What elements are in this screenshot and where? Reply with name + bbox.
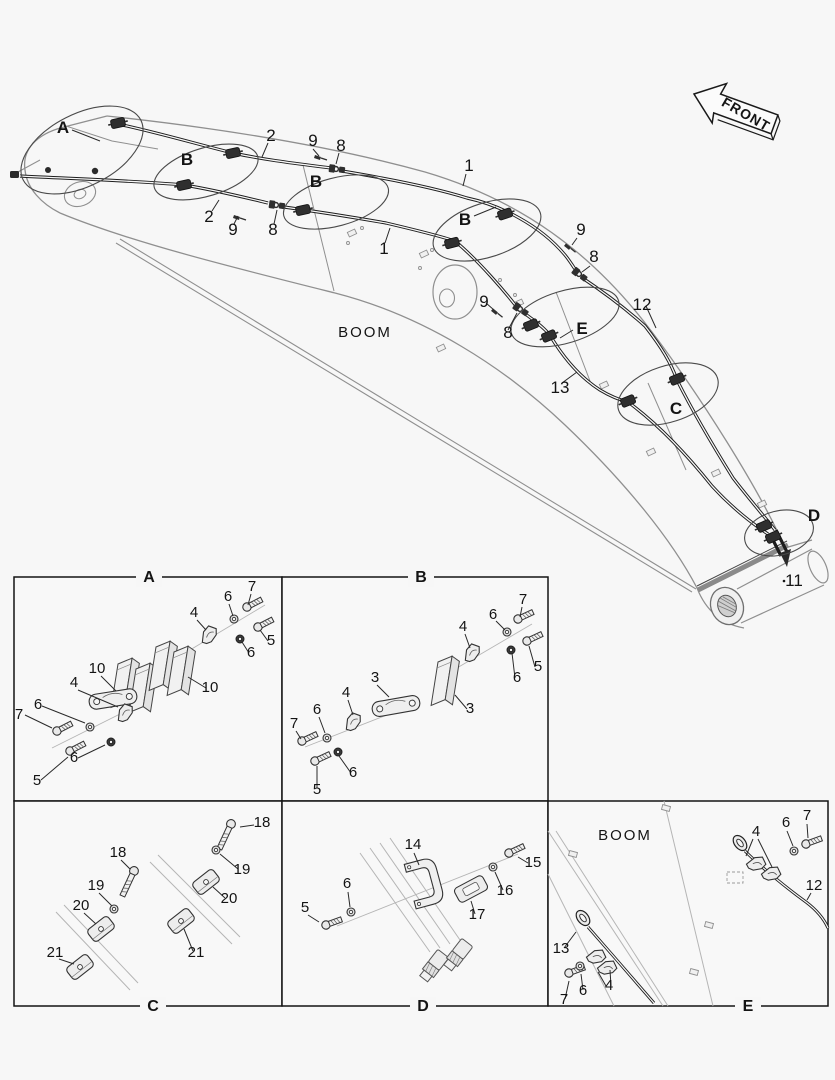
leader-lines-main xyxy=(72,130,656,383)
panel-c-part-label-19: 19 xyxy=(88,877,105,894)
diagram-part-label-1: 1 xyxy=(379,239,388,258)
panel-b-part-label-6: 6 xyxy=(349,764,357,781)
diagram-part-label-9: 9 xyxy=(576,220,585,239)
diagram-callout-B: B xyxy=(181,150,193,169)
diagram-callout-B: B xyxy=(459,210,471,229)
panel-tab-c: C xyxy=(147,998,159,1015)
parts-diagram-page: FRONT BOOM xyxy=(0,0,835,1080)
panel-c-part-label-18: 18 xyxy=(110,844,127,861)
boom-main-label: BOOM xyxy=(338,324,392,341)
diagram-part-label-2: 2 xyxy=(204,207,213,226)
panel-a-part-label-6: 6 xyxy=(224,588,232,605)
panel-tab-b: B xyxy=(415,569,427,586)
panel-a-part-label-7: 7 xyxy=(248,578,256,595)
panel-d-part-label-6: 6 xyxy=(343,875,351,892)
panel-d-part-label-14: 14 xyxy=(405,836,422,853)
panel-b xyxy=(282,577,548,801)
panel-d-part-label-17: 17 xyxy=(469,906,486,923)
panel-e-part-label-12: 12 xyxy=(806,877,823,894)
diagram-callout-C: C xyxy=(670,399,682,418)
front-direction-arrow: FRONT xyxy=(687,74,786,144)
panel-c-part-label-20: 20 xyxy=(221,890,238,907)
diagram-part-label-8: 8 xyxy=(268,220,277,239)
callout-ellipses xyxy=(7,88,818,563)
panel-tab-a: A xyxy=(143,569,155,586)
panel-b-part-label-5: 5 xyxy=(313,781,321,798)
panel-c-part-label-21: 21 xyxy=(47,944,64,961)
diagram-part-label-13: 13 xyxy=(551,378,570,397)
boom-body xyxy=(18,116,832,630)
diagram-part-label-2: 2 xyxy=(266,126,275,145)
panel-a-part-label-5: 5 xyxy=(33,772,41,789)
panel-d-part-label-15: 15 xyxy=(525,854,542,871)
panel-d-part-label-16: 16 xyxy=(497,882,514,899)
panel-a-part-label-7: 7 xyxy=(15,706,23,723)
panel-a-part-label-6: 6 xyxy=(70,749,78,766)
diagram-part-label-8: 8 xyxy=(336,136,345,155)
panel-e-part-label-6: 6 xyxy=(782,814,790,831)
panel-b-part-label-3: 3 xyxy=(466,700,474,717)
hydraulic-pipes xyxy=(10,117,791,583)
diagram-callout-D: D xyxy=(808,506,820,525)
panel-b-part-label-7: 7 xyxy=(519,591,527,608)
panel-a-part-label-6: 6 xyxy=(247,644,255,661)
diagram-part-label-8: 8 xyxy=(503,323,512,342)
panel-tab-e: E xyxy=(743,998,754,1015)
panel-c-part-label-18: 18 xyxy=(254,814,271,831)
pipe-end-arrowhead xyxy=(780,549,791,567)
panel-e-part-label-7: 7 xyxy=(803,807,811,824)
panel-d-part-label-5: 5 xyxy=(301,899,309,916)
boom-foot xyxy=(697,541,832,630)
diagram-part-label-9: 9 xyxy=(479,292,488,311)
panel-a-part-label-4: 4 xyxy=(190,604,198,621)
panel-b-part-label-7: 7 xyxy=(290,715,298,732)
diagram-callout-A: A xyxy=(57,118,69,137)
panel-c-part-label-19: 19 xyxy=(234,861,251,878)
diagram-part-label-8: 8 xyxy=(589,247,598,266)
diagram-part-label-9: 9 xyxy=(228,220,237,239)
panel-e-part-label-6: 6 xyxy=(579,982,587,999)
panel-b-part-label-3: 3 xyxy=(371,669,379,686)
diagram-part-label-12: 12 xyxy=(633,295,652,314)
panel-b-part-label-5: 5 xyxy=(534,658,542,675)
panel-e-part-label-4: 4 xyxy=(752,823,760,840)
diagram-callout-E: E xyxy=(576,319,587,338)
panel-c-part-label-20: 20 xyxy=(73,897,90,914)
panel-b-part-label-4: 4 xyxy=(342,684,350,701)
panel-a-part-label-5: 5 xyxy=(267,632,275,649)
panel-a-part-label-6: 6 xyxy=(34,696,42,713)
panel-e-part-label-7: 7 xyxy=(560,991,568,1008)
panel-b-part-label-6: 6 xyxy=(513,669,521,686)
diagram-callout-B: B xyxy=(310,172,322,191)
panel-tab-d: D xyxy=(417,998,429,1015)
boom-piping-diagram: FRONT BOOM xyxy=(0,0,835,1080)
panel-e-part-label-13: 13 xyxy=(553,940,570,957)
diagram-part-label-11: 11 xyxy=(785,571,803,590)
panel-b-part-label-6: 6 xyxy=(489,606,497,623)
panel-e-part-label-4: 4 xyxy=(605,977,613,994)
panel-c-part-label-21: 21 xyxy=(188,944,205,961)
panel-a-part-label-4: 4 xyxy=(70,674,78,691)
panel-a-part-label-10: 10 xyxy=(89,660,106,677)
diagram-part-label-9: 9 xyxy=(308,131,317,150)
panel-c xyxy=(14,801,282,1006)
detail-panels xyxy=(14,577,828,1006)
diagram-part-label-1: 1 xyxy=(464,156,473,175)
panel-b-part-label-6: 6 xyxy=(313,701,321,718)
panel-b-part-label-4: 4 xyxy=(459,618,467,635)
panel-e-boom-label: BOOM xyxy=(598,827,652,844)
panel-a-part-label-10: 10 xyxy=(202,679,219,696)
